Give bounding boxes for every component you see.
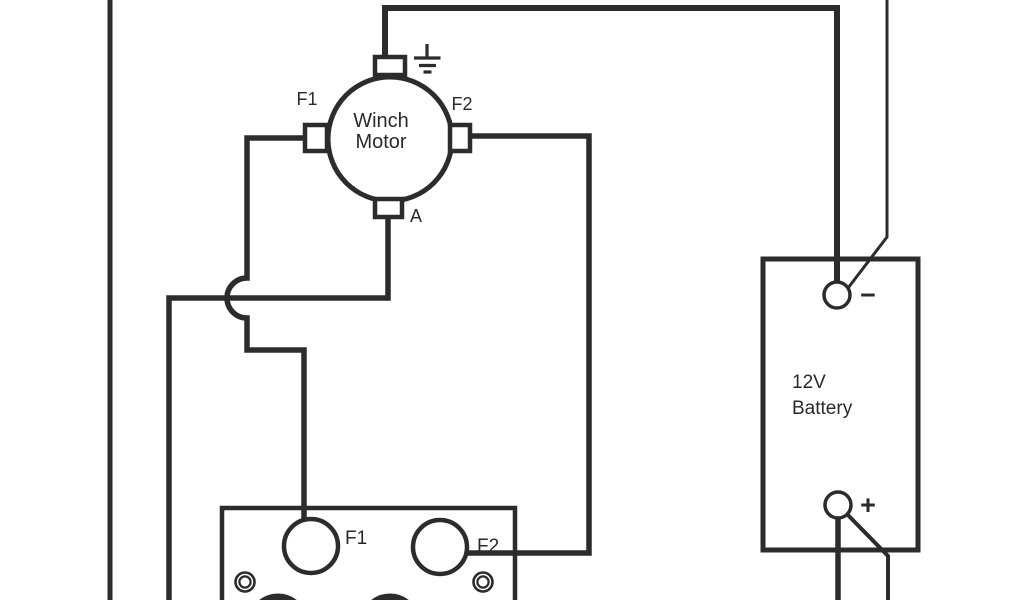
mounting-hole-left (236, 573, 255, 592)
wire-motor-f1-to-box-f1 (227, 138, 308, 530)
battery-negative-terminal (824, 282, 850, 308)
battery-positive-terminal (825, 492, 851, 518)
battery-label-line1: 12V (792, 372, 826, 393)
motor-terminal-ground (375, 57, 405, 75)
motor-terminal-f2 (450, 125, 470, 151)
mounting-hole-right (474, 573, 493, 592)
motor-terminal-f1 (305, 125, 327, 151)
wire-top-to-battery-negative-thin (845, 0, 887, 292)
wiring-diagram-canvas: Winch Motor F1 F2 A − + 12V Battery F1 F… (0, 0, 1024, 600)
battery-label-line2: Battery (792, 398, 853, 419)
motor-f2-label: F2 (451, 94, 472, 114)
motor-f1-label: F1 (296, 89, 317, 109)
box-f2-label: F2 (477, 536, 499, 557)
box-f1-label: F1 (345, 528, 367, 549)
box-terminal-f2 (413, 520, 467, 574)
wire-motor-f2-to-box-f2 (450, 136, 589, 553)
motor-label-line1: Winch (353, 110, 409, 132)
wiring-diagram: Winch Motor F1 F2 A − + 12V Battery F1 F… (0, 0, 1024, 600)
motor-terminal-a (375, 199, 402, 217)
ground-icon (414, 44, 441, 72)
motor-a-label: A (410, 206, 422, 226)
box-terminal-f1 (284, 519, 338, 573)
battery-positive-sign: + (860, 490, 876, 520)
motor-label-line2: Motor (355, 131, 406, 153)
battery-negative-sign: − (860, 280, 876, 310)
